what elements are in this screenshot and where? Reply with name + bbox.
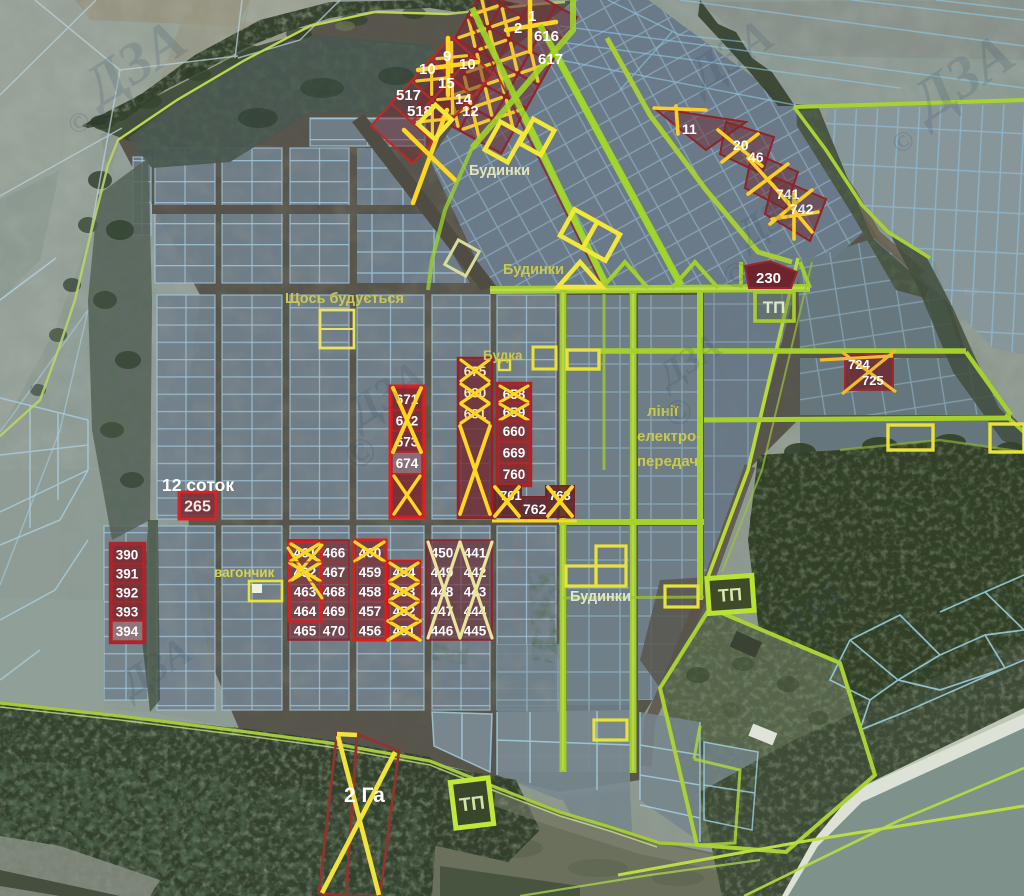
svg-text:393: 393 [116,604,139,619]
svg-text:394: 394 [116,624,139,639]
svg-text:15: 15 [438,75,455,92]
svg-text:762: 762 [523,501,547,517]
svg-text:11: 11 [682,121,697,137]
svg-text:12: 12 [462,103,479,120]
svg-text:725: 725 [862,373,884,388]
svg-text:470: 470 [323,623,346,638]
svg-text:9: 9 [443,48,451,65]
svg-text:2 Га: 2 Га [344,784,385,807]
svg-text:12 соток: 12 соток [162,475,234,495]
svg-text:456: 456 [359,623,382,638]
svg-text:466: 466 [323,545,346,560]
svg-text:457: 457 [359,604,382,619]
svg-text:660: 660 [503,424,526,439]
svg-text:передач: передач [637,453,698,470]
svg-text:1: 1 [528,8,536,25]
svg-text:468: 468 [323,584,346,599]
svg-text:Будка: Будка [483,348,523,363]
svg-text:517: 517 [396,87,421,104]
svg-text:Будинки: Будинки [570,589,631,605]
svg-text:617: 617 [538,51,563,68]
svg-text:2: 2 [514,20,522,37]
svg-text:465: 465 [294,623,317,638]
svg-text:20: 20 [733,137,749,153]
svg-text:458: 458 [359,584,382,599]
svg-text:469: 469 [323,604,346,619]
svg-text:265: 265 [184,498,211,515]
svg-text:760: 760 [503,467,526,482]
svg-text:446: 446 [431,623,454,638]
svg-text:46: 46 [748,149,764,165]
svg-text:616: 616 [534,28,559,45]
svg-text:669: 669 [503,445,526,460]
svg-text:Будинки: Будинки [503,262,564,278]
svg-text:390: 390 [116,547,139,562]
svg-text:459: 459 [359,565,382,580]
svg-text:Будинки: Будинки [469,163,530,179]
svg-text:392: 392 [116,585,139,600]
svg-text:445: 445 [464,623,487,638]
svg-text:391: 391 [116,566,139,581]
svg-text:ТП: ТП [717,584,742,606]
svg-text:10: 10 [419,61,436,78]
svg-text:вагончик: вагончик [214,565,275,580]
svg-text:Щось будується: Щось будується [285,291,404,307]
svg-text:464: 464 [294,604,317,619]
svg-text:230: 230 [756,270,781,287]
svg-text:електро-: електро- [637,428,701,445]
svg-text:ТП: ТП [458,793,486,817]
svg-text:467: 467 [323,565,346,580]
svg-text:674: 674 [396,456,419,471]
svg-text:ТП: ТП [763,298,786,317]
svg-text:441: 441 [464,545,487,560]
svg-text:10: 10 [459,56,476,73]
svg-text:724: 724 [848,357,870,372]
